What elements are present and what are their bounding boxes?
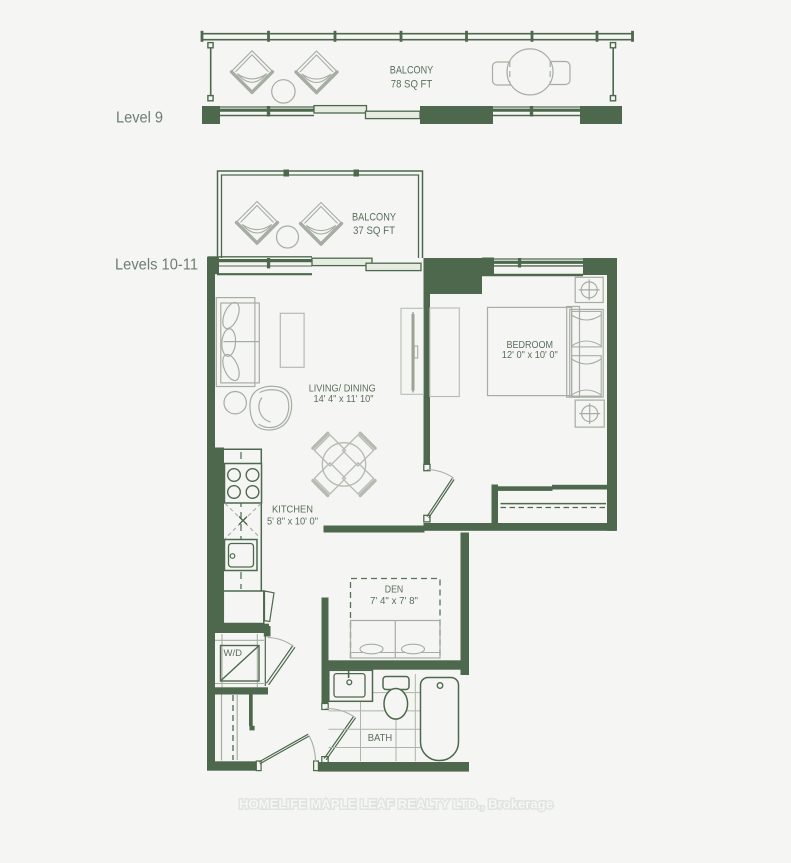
svg-text:14' 4" x 11' 10": 14' 4" x 11' 10"	[314, 394, 374, 405]
svg-text:BALCONY: BALCONY	[390, 65, 434, 77]
svg-text:DEN: DEN	[385, 585, 404, 596]
svg-text:BALCONY: BALCONY	[352, 212, 396, 224]
svg-text:37 SQ FT: 37 SQ FT	[353, 225, 395, 237]
svg-text:KITCHEN: KITCHEN	[272, 505, 313, 516]
svg-text:5' 8" x 10' 0": 5' 8" x 10' 0"	[267, 517, 318, 528]
svg-text:12' 0" x 10' 0": 12' 0" x 10' 0"	[502, 350, 558, 361]
svg-text:LIVING/ DINING: LIVING/ DINING	[309, 383, 376, 394]
svg-text:HOMELIFE MAPLE LEAF REALTY LTD: HOMELIFE MAPLE LEAF REALTY LTD., Brokera…	[239, 797, 553, 812]
svg-text:Level 9: Level 9	[116, 110, 163, 127]
svg-text:Levels 10-11: Levels 10-11	[115, 257, 198, 274]
svg-text:W/D: W/D	[224, 648, 243, 658]
svg-text:BATH: BATH	[368, 733, 393, 744]
svg-text:78 SQ FT: 78 SQ FT	[391, 79, 433, 91]
svg-text:7' 4" x 7' 8": 7' 4" x 7' 8"	[370, 596, 418, 607]
